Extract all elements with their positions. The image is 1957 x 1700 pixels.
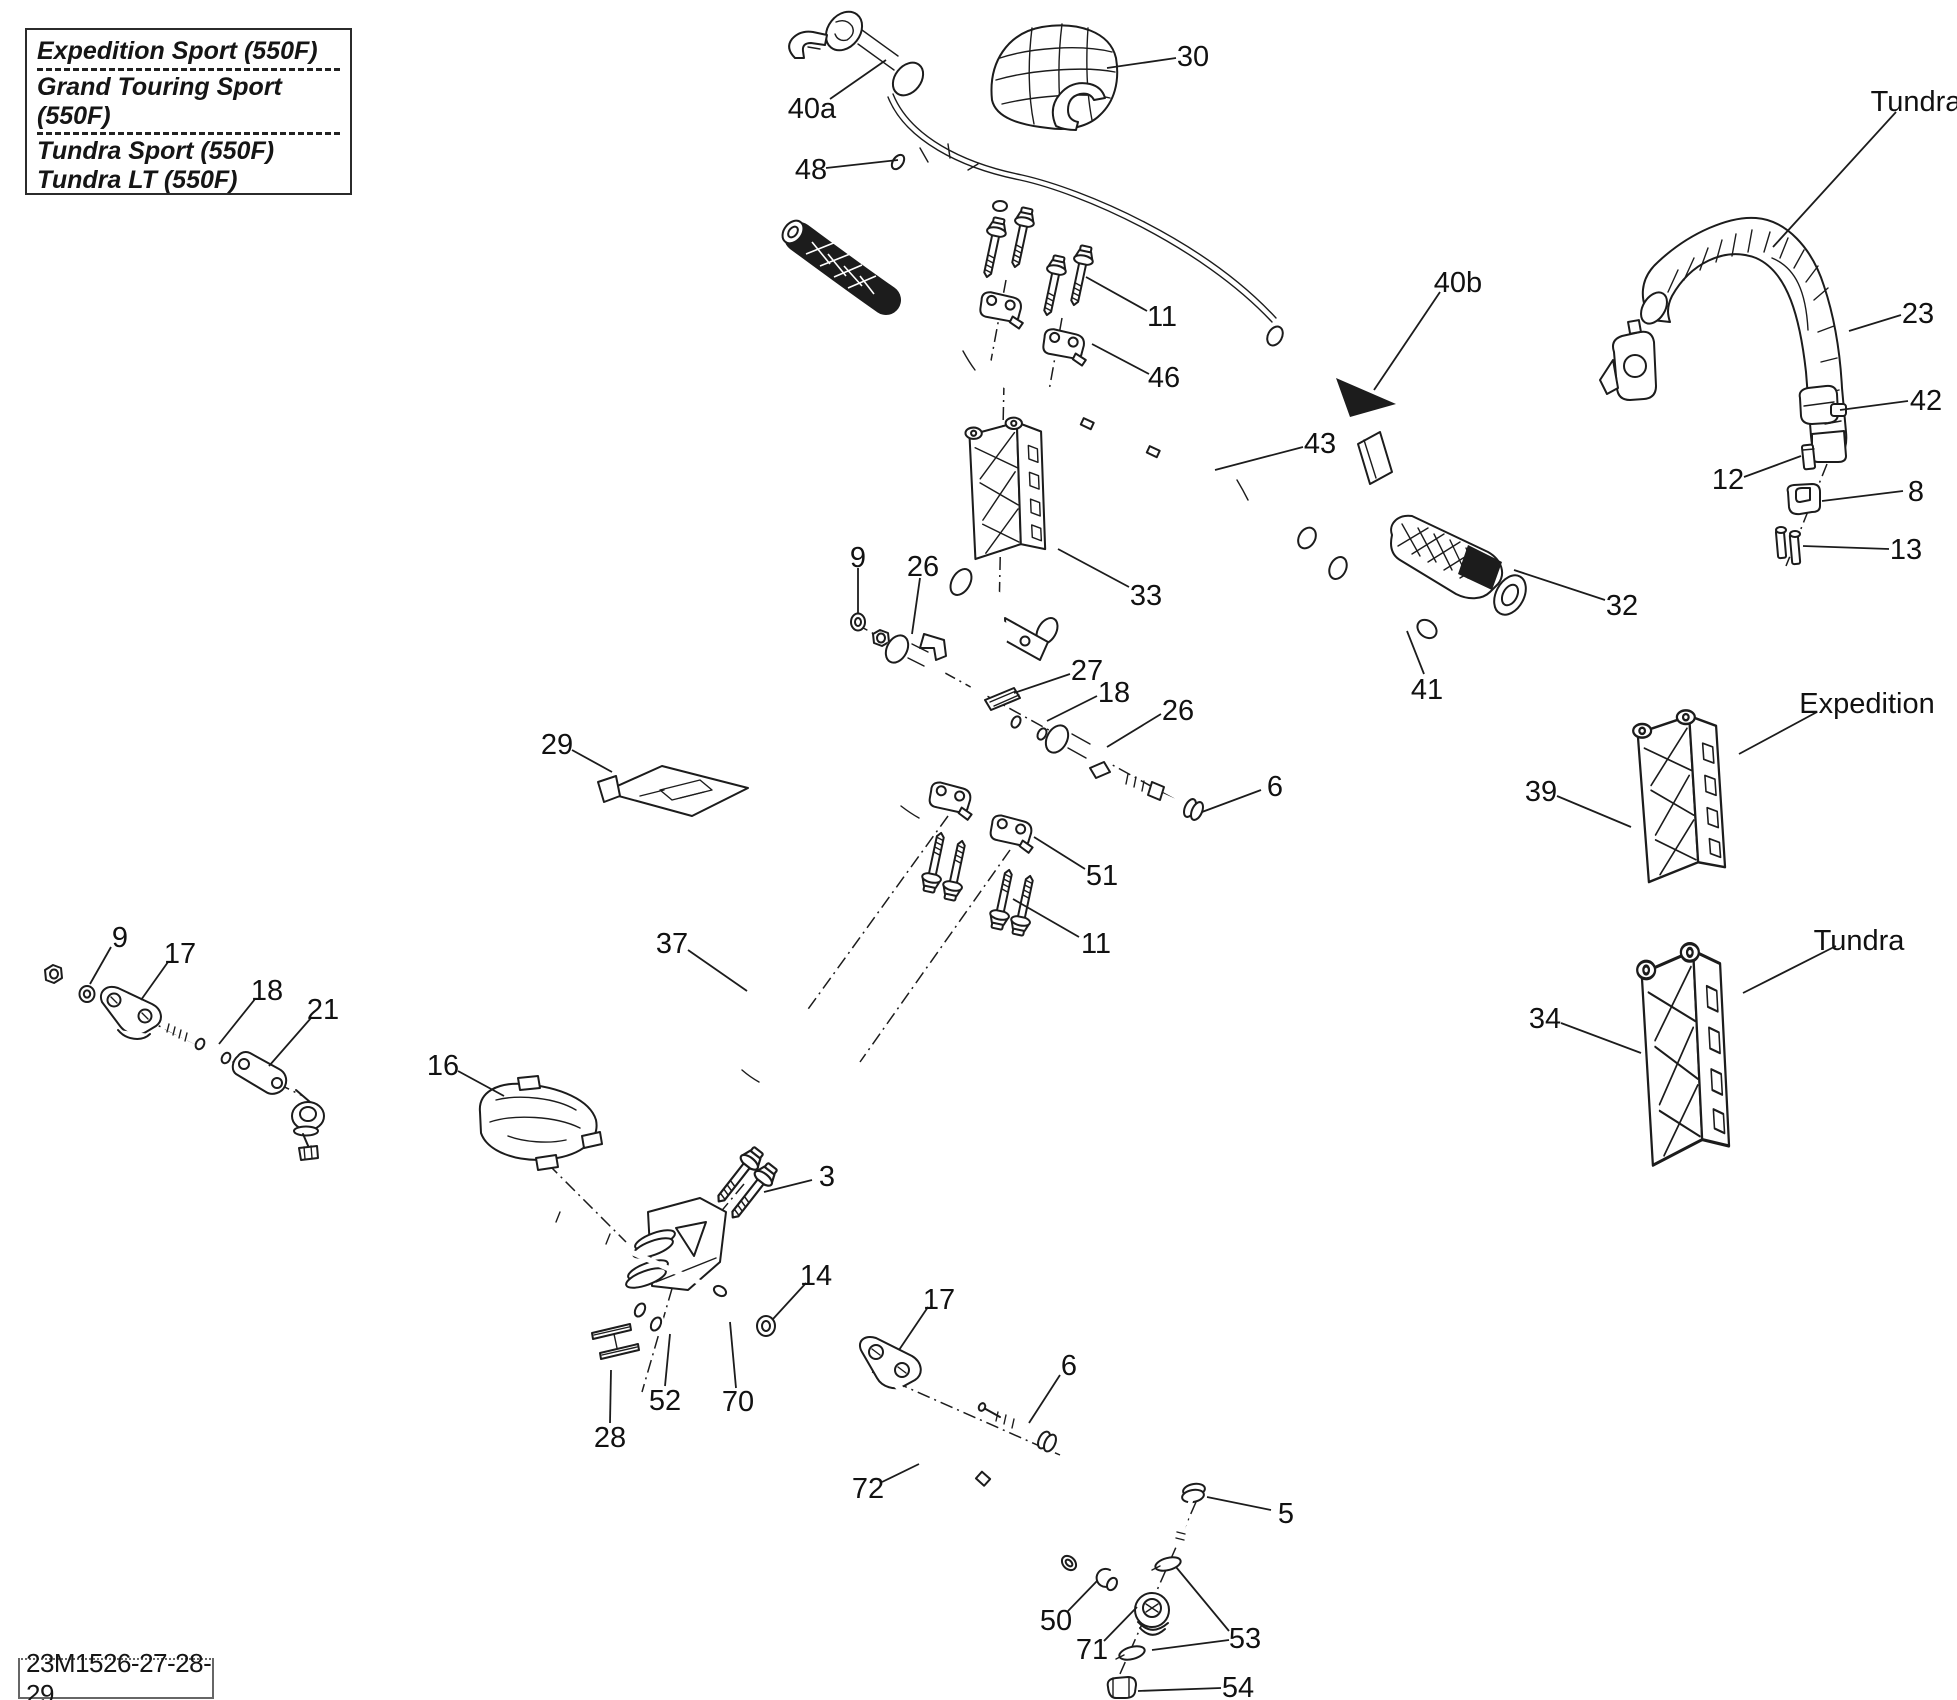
leader-line <box>1176 1567 1229 1631</box>
leader-line <box>1152 1640 1229 1650</box>
callout-6: 6 <box>1267 771 1283 803</box>
threaded-rod-left <box>164 1024 196 1042</box>
callout-9: 9 <box>850 542 866 574</box>
leader-line <box>1047 696 1097 721</box>
callout-23: 23 <box>1902 298 1934 330</box>
pin-18-center <box>1010 715 1049 741</box>
hook-clamp-8 <box>1788 484 1820 514</box>
callout-3: 3 <box>819 1161 835 1193</box>
riser-block-33 <box>961 416 1050 562</box>
leader-line <box>458 1071 504 1096</box>
washer-14 <box>757 1316 775 1336</box>
screws-13 <box>1776 527 1800 564</box>
leader-line <box>1840 401 1908 410</box>
leader-line <box>1822 491 1903 501</box>
leader-line <box>1107 714 1161 747</box>
leader-line <box>830 60 886 99</box>
leader-line <box>1068 1581 1097 1611</box>
callout-18: 18 <box>1098 677 1130 709</box>
callout-30: 30 <box>1177 41 1209 73</box>
handlebar-pad-30 <box>991 24 1117 130</box>
callout-37: 37 <box>656 928 688 960</box>
leader-line <box>1058 549 1129 587</box>
leader-line <box>1849 315 1901 331</box>
leader-line <box>1407 631 1424 674</box>
parts-diagram-canvas: 40a3048Tundra23114640b434212813323341926… <box>0 0 1957 1700</box>
steering-stop-27 <box>985 688 1020 710</box>
ball-joint-left <box>292 1090 324 1160</box>
callout-26: 26 <box>907 551 939 583</box>
washer-53-lower <box>1116 1644 1146 1662</box>
leader-line <box>1202 790 1261 812</box>
callout-14: 14 <box>800 1260 832 1292</box>
callout-34: 34 <box>1529 1003 1561 1035</box>
callout-12: 12 <box>1712 464 1744 496</box>
callout-40a: 40a <box>788 93 837 125</box>
callout-8: 8 <box>1908 476 1924 508</box>
washer-9-center <box>851 614 865 631</box>
nut-center <box>873 630 889 646</box>
callout-17: 17 <box>164 938 196 970</box>
leader-line <box>269 1018 311 1066</box>
callout-40b: 40b <box>1434 267 1482 299</box>
heated-grip-40a <box>818 5 929 102</box>
leader-line <box>1092 344 1149 374</box>
leader-line <box>1557 796 1631 827</box>
leader-line <box>219 999 255 1044</box>
tie-rod-long <box>330 1118 856 1352</box>
leader-line <box>1104 1607 1137 1641</box>
bolt-5 <box>1176 1482 1206 1546</box>
coupler-26-lower <box>1041 722 1110 778</box>
callout-43: 43 <box>1304 428 1336 460</box>
callout-71: 71 <box>1076 1634 1108 1666</box>
handlebar-grip-knurl <box>799 237 886 300</box>
callout-9: 9 <box>112 922 128 954</box>
riser-block-34-tundra <box>1637 944 1729 1166</box>
nut-left <box>45 965 62 983</box>
leader-line <box>1029 1375 1060 1423</box>
leader-line <box>665 1334 670 1386</box>
callout-54: 54 <box>1222 1672 1254 1700</box>
callout-Expedition: Expedition <box>1799 688 1934 720</box>
leader-line <box>912 578 920 634</box>
hook-clamp-lever <box>1600 320 1656 400</box>
leader-line <box>572 750 612 772</box>
pin-12 <box>1802 444 1815 469</box>
leader-line <box>1138 1688 1221 1691</box>
leader-line <box>1215 447 1303 470</box>
callout-50: 50 <box>1040 1605 1072 1637</box>
hose-48 <box>889 144 1007 211</box>
callout-Tundra: Tundra <box>1871 86 1957 118</box>
callout-17: 17 <box>923 1284 955 1316</box>
leader-line <box>826 160 898 168</box>
leader-line <box>1086 277 1147 311</box>
link-21 <box>233 1052 286 1094</box>
leader-line <box>1773 112 1896 247</box>
leader-line <box>1014 674 1070 693</box>
callout-48: 48 <box>795 154 827 186</box>
bolt-6-lower <box>977 1402 1058 1453</box>
mountain-strap-hook-23 <box>1636 218 1847 462</box>
leader-line <box>1514 570 1605 600</box>
callout-28: 28 <box>594 1422 626 1454</box>
rod-end-71 <box>1105 1576 1169 1635</box>
callout-18: 18 <box>251 975 283 1007</box>
callout-11: 11 <box>1081 928 1111 960</box>
coupler-26-upper <box>881 632 946 668</box>
callout-Tundra: Tundra <box>1814 925 1906 957</box>
column-cover-16 <box>480 1076 602 1170</box>
leader-line <box>90 947 111 984</box>
callout-5: 5 <box>1278 1498 1294 1530</box>
clevis-17-lower <box>790 1334 921 1388</box>
callout-46: 46 <box>1148 362 1180 394</box>
nut-54 <box>1108 1677 1136 1698</box>
callout-41: 41 <box>1411 674 1443 706</box>
washer-53-upper <box>1152 1555 1182 1573</box>
leader-line <box>610 1370 611 1423</box>
callout-26: 26 <box>1162 695 1194 727</box>
leader-line <box>1034 837 1085 869</box>
gauge-support-29 <box>598 766 748 816</box>
callout-39: 39 <box>1525 776 1557 808</box>
callout-29: 29 <box>541 729 573 761</box>
callout-32: 32 <box>1606 590 1638 622</box>
bushings-52 <box>633 1302 674 1334</box>
leader-line <box>882 1464 919 1482</box>
leader-line <box>1374 292 1440 390</box>
rod-end-17-left <box>101 987 161 1039</box>
riser-block-39-expedition <box>1633 710 1725 882</box>
leader-line <box>1744 456 1801 477</box>
callout-72: 72 <box>852 1473 884 1505</box>
leader-line <box>730 1322 736 1388</box>
callout-42: 42 <box>1910 385 1942 417</box>
leader-line <box>688 950 747 991</box>
callout-21: 21 <box>307 994 339 1026</box>
pin-18-left <box>194 1037 232 1064</box>
bolt-6-upper <box>1124 774 1205 822</box>
callout-16: 16 <box>427 1050 459 1082</box>
leader-line <box>1561 1023 1641 1053</box>
washer-9-left <box>80 986 95 1002</box>
washers-28 <box>592 1324 639 1359</box>
grip-clip-40a <box>789 32 827 58</box>
callout-11: 11 <box>1147 301 1177 333</box>
leader-line <box>1207 1497 1271 1510</box>
callout-6: 6 <box>1061 1350 1077 1382</box>
leader-line <box>1803 546 1889 549</box>
callout-13: 13 <box>1890 534 1922 566</box>
parts-diagram-page: Expedition Sport (550F) Grand Touring Sp… <box>0 0 1957 1700</box>
callout-51: 51 <box>1086 860 1118 892</box>
callout-70: 70 <box>722 1386 754 1418</box>
callout-52: 52 <box>649 1385 681 1417</box>
callout-33: 33 <box>1130 580 1162 612</box>
callout-53: 53 <box>1229 1623 1261 1655</box>
arrow-40b <box>1336 378 1396 417</box>
